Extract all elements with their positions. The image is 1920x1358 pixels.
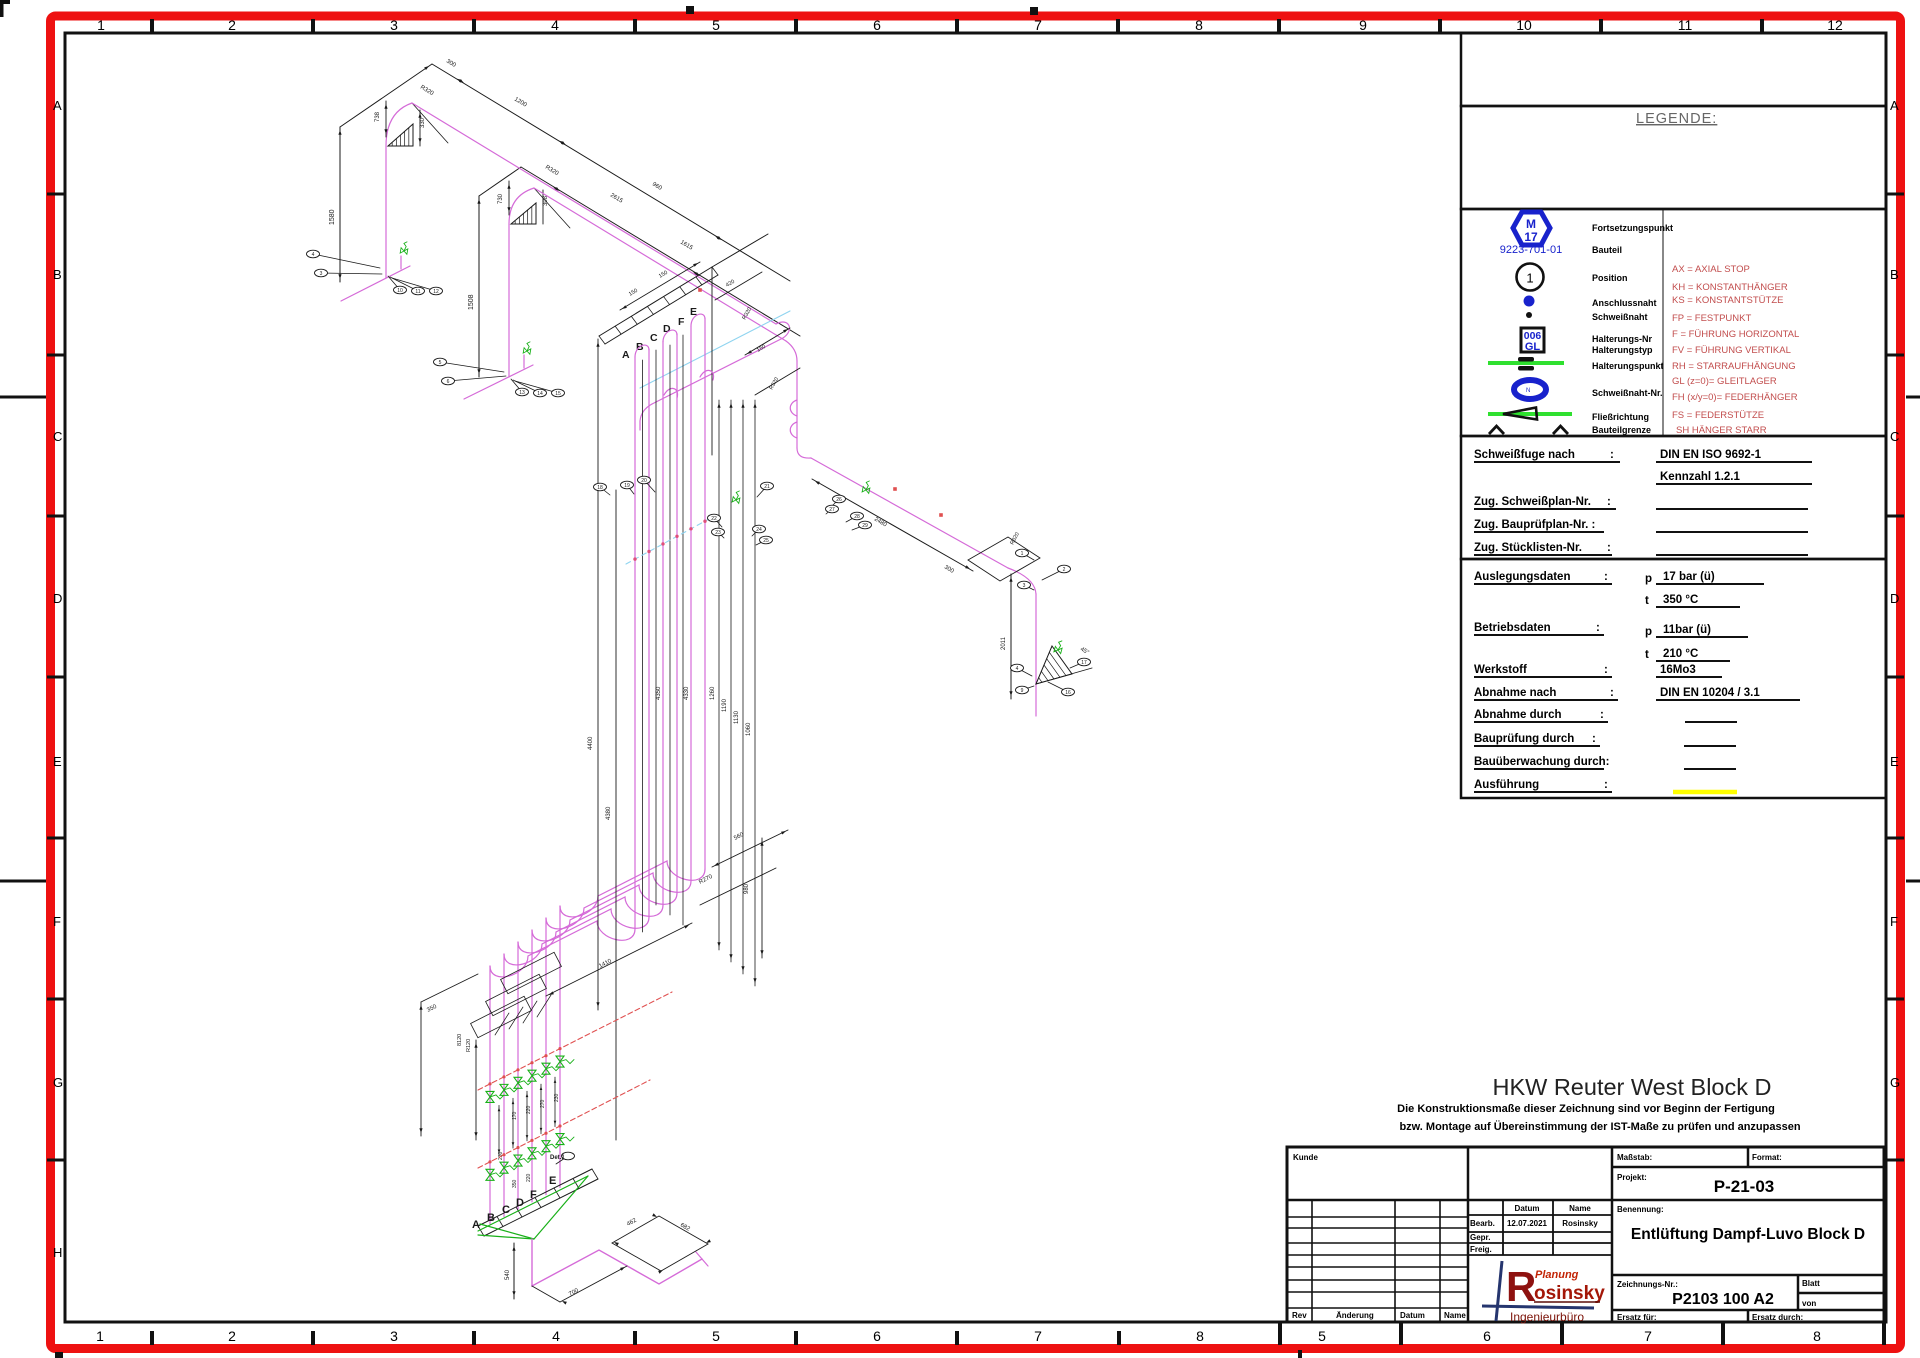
svg-text:5: 5 xyxy=(712,17,720,33)
svg-text:Ersatz für:: Ersatz für: xyxy=(1617,1313,1657,1322)
svg-text:Zeichnungs-Nr.:: Zeichnungs-Nr.: xyxy=(1617,1280,1678,1289)
svg-text:KS = KONSTANTSTÜTZE: KS = KONSTANTSTÜTZE xyxy=(1672,295,1783,306)
svg-text:osinsky: osinsky xyxy=(1534,1283,1605,1304)
svg-text:Planung: Planung xyxy=(1535,1269,1579,1281)
svg-text:24: 24 xyxy=(756,527,762,533)
svg-text::: : xyxy=(1592,733,1596,745)
svg-text:E: E xyxy=(1890,754,1899,769)
svg-text:17 bar (ü): 17 bar (ü) xyxy=(1663,571,1715,583)
svg-text:1: 1 xyxy=(1526,271,1533,286)
svg-text:p: p xyxy=(1645,573,1652,585)
svg-text:bzw. Montage auf Übereinstimmu: bzw. Montage auf Übereinstimmung der IST… xyxy=(1399,1120,1800,1133)
svg-text:D: D xyxy=(53,591,62,606)
svg-text:Kunde: Kunde xyxy=(1293,1153,1318,1162)
svg-text:2011: 2011 xyxy=(1001,636,1007,650)
svg-text:Schweißfuge nach: Schweißfuge nach xyxy=(1474,449,1575,461)
svg-text:E: E xyxy=(53,754,62,769)
svg-text::: : xyxy=(1607,542,1611,554)
svg-text:3: 3 xyxy=(390,17,398,33)
svg-text:Datum: Datum xyxy=(1515,1204,1540,1213)
svg-text:1508: 1508 xyxy=(468,294,475,310)
svg-text:10: 10 xyxy=(1516,17,1532,33)
svg-text:12: 12 xyxy=(433,289,439,295)
svg-text:D: D xyxy=(663,323,671,335)
svg-text:FV = FÜHRUNG VERTIKAL: FV = FÜHRUNG VERTIKAL xyxy=(1672,345,1791,356)
svg-text:C: C xyxy=(502,1204,510,1216)
svg-text:A: A xyxy=(53,98,62,113)
svg-text:3: 3 xyxy=(390,1328,398,1344)
svg-text:350: 350 xyxy=(512,1179,518,1188)
svg-text:LEGENDE:: LEGENDE: xyxy=(1636,111,1717,127)
svg-text:10: 10 xyxy=(397,288,403,294)
svg-text:Werkstoff: Werkstoff xyxy=(1474,664,1527,676)
svg-text:29: 29 xyxy=(862,523,868,529)
svg-text:C: C xyxy=(1890,429,1899,444)
svg-text:18: 18 xyxy=(597,485,603,491)
svg-text:738: 738 xyxy=(375,111,381,122)
svg-text:16Mo3: 16Mo3 xyxy=(1660,664,1696,676)
svg-text:KH = KONSTANTHÄNGER: KH = KONSTANTHÄNGER xyxy=(1672,282,1788,293)
svg-text:P2103 100 A2: P2103 100 A2 xyxy=(1672,1291,1774,1308)
svg-text:11bar (ü): 11bar (ü) xyxy=(1663,624,1711,636)
svg-text:11: 11 xyxy=(415,289,420,295)
svg-text:Abnahme durch: Abnahme durch xyxy=(1474,709,1562,721)
svg-text::: : xyxy=(1610,687,1614,699)
svg-text:Zug. Schweißplan-Nr.: Zug. Schweißplan-Nr. xyxy=(1474,496,1591,508)
svg-text:Projekt:: Projekt: xyxy=(1617,1173,1647,1182)
svg-text:FH (x/y=0)= FEDERHÄNGER: FH (x/y=0)= FEDERHÄNGER xyxy=(1672,392,1798,403)
svg-text:28: 28 xyxy=(854,514,860,520)
svg-text:13: 13 xyxy=(519,390,525,396)
svg-text:5: 5 xyxy=(439,360,442,366)
svg-text:Schweißnaht: Schweißnaht xyxy=(1592,312,1648,322)
svg-text:Name: Name xyxy=(1569,1204,1591,1213)
svg-text::: : xyxy=(1604,779,1608,791)
svg-text:11: 11 xyxy=(1678,17,1693,33)
svg-text:6: 6 xyxy=(447,379,450,385)
svg-text:3: 3 xyxy=(320,271,323,277)
svg-text:t: t xyxy=(1645,649,1649,661)
svg-text:Datum: Datum xyxy=(1400,1311,1425,1320)
svg-text:1: 1 xyxy=(97,17,105,33)
svg-text:9: 9 xyxy=(1359,17,1367,33)
svg-text:Zug. Stücklisten-Nr.: Zug. Stücklisten-Nr. xyxy=(1474,542,1582,554)
svg-text:6: 6 xyxy=(1483,1328,1491,1344)
svg-text:HKW Reuter West Block D: HKW Reuter West Block D xyxy=(1492,1074,1771,1100)
svg-text:Abnahme nach: Abnahme nach xyxy=(1474,687,1556,699)
svg-text:980: 980 xyxy=(744,883,750,894)
svg-text:Name: Name xyxy=(1444,1311,1466,1320)
svg-text:Halterungspunkt: Halterungspunkt xyxy=(1592,361,1664,371)
svg-text:Auslegungsdaten: Auslegungsdaten xyxy=(1474,571,1570,583)
svg-text:F: F xyxy=(530,1189,537,1201)
svg-text:8: 8 xyxy=(1196,1328,1204,1344)
svg-text:Änderung: Änderung xyxy=(1336,1311,1374,1320)
svg-text:27: 27 xyxy=(829,507,835,513)
svg-text:D: D xyxy=(1890,591,1899,606)
svg-text:4: 4 xyxy=(312,252,315,258)
svg-text:9223-701-01: 9223-701-01 xyxy=(1500,244,1562,256)
svg-text:8: 8 xyxy=(1195,17,1203,33)
svg-text:G: G xyxy=(1890,1075,1900,1090)
svg-text:21: 21 xyxy=(764,484,770,490)
svg-text:2: 2 xyxy=(228,17,236,33)
svg-text:B: B xyxy=(1890,267,1899,282)
svg-text:G: G xyxy=(53,1075,63,1090)
svg-text:von: von xyxy=(1802,1299,1816,1308)
svg-text:Bearb.: Bearb. xyxy=(1470,1219,1495,1228)
svg-text::: : xyxy=(1610,449,1614,461)
svg-text:p: p xyxy=(1645,626,1652,638)
svg-text:2: 2 xyxy=(1063,567,1066,573)
svg-text:Anschlussnaht: Anschlussnaht xyxy=(1592,298,1657,308)
svg-text:Format:: Format: xyxy=(1752,1153,1782,1162)
svg-text:B: B xyxy=(487,1212,495,1224)
svg-text:4380: 4380 xyxy=(606,806,612,820)
svg-text:4: 4 xyxy=(1016,666,1019,672)
svg-text:17: 17 xyxy=(1524,230,1538,244)
svg-text:20: 20 xyxy=(641,478,647,484)
svg-text:Fortsetzungspunkt: Fortsetzungspunkt xyxy=(1592,223,1673,233)
svg-text:B: B xyxy=(53,267,62,282)
svg-text:3: 3 xyxy=(1023,583,1026,589)
svg-text:Bauteil: Bauteil xyxy=(1592,245,1622,255)
svg-text:2: 2 xyxy=(228,1328,236,1344)
svg-text:F: F xyxy=(678,316,685,328)
svg-text:19: 19 xyxy=(624,483,630,489)
svg-text:17: 17 xyxy=(1081,660,1087,666)
svg-text:FP = FESTPUNKT: FP = FESTPUNKT xyxy=(1672,313,1751,324)
svg-text:7: 7 xyxy=(1644,1328,1652,1344)
svg-text:DIN EN ISO 9692-1: DIN EN ISO 9692-1 xyxy=(1660,449,1762,461)
svg-text:4400: 4400 xyxy=(588,736,594,750)
svg-text:Freig.: Freig. xyxy=(1470,1245,1492,1254)
svg-text::: : xyxy=(1604,664,1608,676)
svg-text:5: 5 xyxy=(1318,1328,1326,1344)
svg-text::: : xyxy=(1604,571,1608,583)
svg-text:8120: 8120 xyxy=(457,1034,463,1046)
svg-text:N: N xyxy=(1526,388,1530,394)
svg-text:R: R xyxy=(1506,1263,1536,1310)
svg-text:Kennzahl 1.2.1: Kennzahl 1.2.1 xyxy=(1660,471,1740,483)
svg-text:Benennung:: Benennung: xyxy=(1617,1205,1664,1214)
svg-text:26: 26 xyxy=(836,497,842,503)
svg-text:540: 540 xyxy=(505,1269,511,1280)
svg-text:5: 5 xyxy=(712,1328,720,1344)
svg-text:C: C xyxy=(650,332,658,344)
svg-text:1260: 1260 xyxy=(710,686,716,700)
svg-text:12: 12 xyxy=(1827,17,1843,33)
svg-text:C: C xyxy=(53,429,62,444)
svg-text:A: A xyxy=(472,1219,480,1231)
svg-text:23: 23 xyxy=(715,530,721,536)
svg-text:Halterungs-Nr: Halterungs-Nr xyxy=(1592,334,1653,344)
svg-text:9: 9 xyxy=(1021,688,1024,694)
svg-text:Det.1: Det.1 xyxy=(550,1155,565,1161)
svg-text:220: 220 xyxy=(526,1173,532,1182)
svg-text:Blatt: Blatt xyxy=(1802,1279,1820,1288)
svg-text:Schweißnaht-Nr.: Schweißnaht-Nr. xyxy=(1592,388,1663,398)
svg-text:Bauprüfung durch: Bauprüfung durch xyxy=(1474,733,1574,745)
svg-text:Entlüftung Dampf-Luvo Block: Entlüftung Dampf-Luvo Block D xyxy=(1631,1226,1865,1243)
svg-text:1190: 1190 xyxy=(722,698,728,712)
svg-text:15: 15 xyxy=(555,391,561,397)
svg-text:4: 4 xyxy=(551,17,559,33)
svg-text:730: 730 xyxy=(498,193,504,204)
svg-text:E: E xyxy=(549,1175,556,1187)
svg-text:RH = STARRAUFHÄNGUNG: RH = STARRAUFHÄNGUNG xyxy=(1672,361,1796,372)
svg-text:Position: Position xyxy=(1592,273,1628,283)
svg-text::: : xyxy=(1600,709,1604,721)
svg-text:8: 8 xyxy=(1813,1328,1821,1344)
svg-text:1130: 1130 xyxy=(734,710,740,724)
svg-text:12.07.2021: 12.07.2021 xyxy=(1507,1219,1548,1228)
svg-text:330: 330 xyxy=(420,117,426,128)
svg-text:350 °C: 350 °C xyxy=(1663,594,1698,606)
svg-text:1060: 1060 xyxy=(746,722,752,736)
svg-text:7: 7 xyxy=(1034,17,1042,33)
svg-text:A: A xyxy=(622,349,630,361)
svg-text:t: t xyxy=(1645,595,1649,607)
svg-text:GL (z=0)= GLEITLAGER: GL (z=0)= GLEITLAGER xyxy=(1672,376,1777,387)
svg-text:D: D xyxy=(516,1197,524,1209)
svg-text:14: 14 xyxy=(537,391,543,397)
svg-text:6: 6 xyxy=(873,1328,881,1344)
svg-text:P-21-03: P-21-03 xyxy=(1714,1177,1774,1196)
svg-text:7: 7 xyxy=(1034,1328,1042,1344)
svg-text:210 °C: 210 °C xyxy=(1663,648,1698,660)
svg-text:6: 6 xyxy=(873,17,881,33)
svg-text:Die Konstruktionsmaße dieser Z: Die Konstruktionsmaße dieser Zeichnung s… xyxy=(1397,1103,1775,1115)
svg-text:GL: GL xyxy=(1525,341,1541,353)
svg-text:Bauüberwachung durch:: Bauüberwachung durch: xyxy=(1474,756,1609,768)
svg-text:1: 1 xyxy=(1021,551,1024,557)
svg-text:25: 25 xyxy=(763,538,769,544)
svg-text:R120: R120 xyxy=(466,1039,472,1052)
svg-text:1: 1 xyxy=(96,1328,104,1344)
svg-text:Ingenieurbüro: Ingenieurbüro xyxy=(1510,1310,1584,1324)
svg-text:Fließrichtung: Fließrichtung xyxy=(1592,412,1649,422)
svg-text:1580: 1580 xyxy=(329,209,336,225)
svg-text:16: 16 xyxy=(1065,690,1071,696)
svg-text:FS = FEDERSTÜTZE: FS = FEDERSTÜTZE xyxy=(1672,410,1764,421)
svg-text:H: H xyxy=(53,1245,62,1260)
svg-text:Ausführung: Ausführung xyxy=(1474,779,1539,791)
svg-text:Rosinsky: Rosinsky xyxy=(1562,1219,1598,1228)
svg-text::: : xyxy=(1596,622,1600,634)
svg-text:4350: 4350 xyxy=(656,686,662,700)
svg-text:F: F xyxy=(1890,914,1898,929)
svg-text:M: M xyxy=(1526,217,1536,231)
svg-text:DIN EN 10204 / 3.1: DIN EN 10204 / 3.1 xyxy=(1660,687,1760,699)
svg-text:22: 22 xyxy=(711,516,717,522)
svg-text:F: F xyxy=(53,914,61,929)
svg-text:Rev: Rev xyxy=(1292,1311,1307,1320)
svg-text:4: 4 xyxy=(552,1328,560,1344)
svg-text:Zug. Bauprüfplan-Nr. :: Zug. Bauprüfplan-Nr. : xyxy=(1474,519,1595,531)
svg-text:Betriebsdaten: Betriebsdaten xyxy=(1474,622,1551,634)
svg-text:F = FÜHRUNG HORIZONTAL: F = FÜHRUNG HORIZONTAL xyxy=(1672,329,1799,340)
svg-text:Ersatz durch:: Ersatz durch: xyxy=(1752,1313,1803,1322)
svg-text:A: A xyxy=(1890,98,1899,113)
svg-text:Gepr.: Gepr. xyxy=(1470,1233,1490,1242)
svg-text:Halterungstyp: Halterungstyp xyxy=(1592,345,1653,355)
svg-text:Bauteilgrenze: Bauteilgrenze xyxy=(1592,425,1651,435)
svg-text:AX = AXIAL STOP: AX = AXIAL STOP xyxy=(1672,264,1750,275)
svg-text:SH HÄNGER STARR: SH HÄNGER STARR xyxy=(1676,425,1767,436)
svg-text::: : xyxy=(1607,496,1611,508)
svg-text:4330: 4330 xyxy=(684,686,690,700)
svg-text:Maßstab:: Maßstab: xyxy=(1617,1153,1652,1162)
